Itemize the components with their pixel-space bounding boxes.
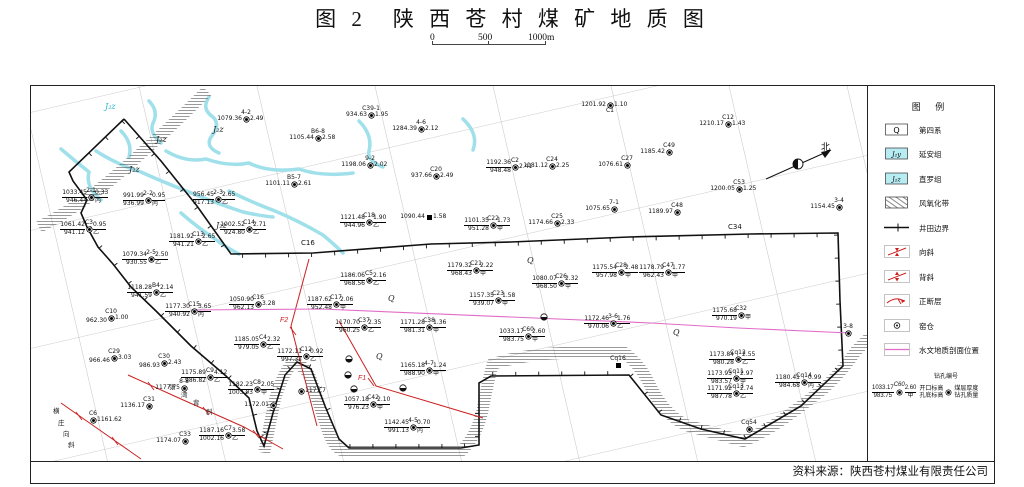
legend-item-3: J₂z直罗组 [884,172,994,187]
fold-name-char: 张 [169,382,176,391]
legend-symbol-syncline [884,245,910,260]
fault-label: F1 [358,375,366,382]
kiln-symbol [351,386,357,392]
legend-symbol-anticline [884,270,910,285]
fold-name-char: 向 [63,429,70,438]
point-label: C16 [301,239,315,247]
legend-label: 井田边界 [919,223,949,234]
legend-symbol-section [884,343,910,358]
legend-symbol-fault [884,294,910,309]
legend-item-2: J₂y延安组 [884,147,994,162]
stratum-label: J₂z [211,125,224,134]
svg-text:Q: Q [893,126,899,135]
legend-label: 背斜 [919,272,934,283]
legend-symbol-qbox: Q [884,123,910,138]
geological-map-figure: { "title": "图 2 陕 西 苍 村 煤 矿 地 质 图", "sca… [0,0,1024,487]
legend-label: 风氧化带 [919,198,949,209]
north-label: 北 [821,142,830,153]
map-canvas: 北J₂zJ₂zJ₂zJ₂zJ₂zQQQQC16C34F2F1张湾背斜横庄向斜 [31,86,994,483]
map-frame: 北J₂zJ₂zJ₂zJ₂zJ₂zQQQQC16C34F2F1张湾背斜横庄向斜 4… [30,85,995,484]
legend-item-9: 窑仓 [884,319,994,334]
kiln-symbol [345,372,351,378]
stratum-label: J₂z [154,135,167,144]
legend-item-7: 背斜 [884,270,994,285]
fold-name-char: 庄 [58,418,65,427]
legend-label: 第四系 [919,125,942,136]
scale-bar-rule [432,44,546,50]
stratum-label: Q [527,256,534,265]
stratum-label: J₂z [127,165,140,174]
legend-item-1: Q第四系 [884,123,994,138]
stratum-label: Q [376,352,383,361]
fold-name-char: 斜 [68,440,75,449]
figure-title: 图 2 陕 西 苍 村 煤 矿 地 质 图 [0,3,1024,33]
fold-name-char: 横 [53,406,60,415]
scale-label-1000: 1000m [528,33,554,43]
kiln-symbol [346,356,352,362]
legend-panel: 图 例 Q第四系J₂y延安组J₂z直罗组风氧化带井田边界向斜背斜正断层窑仓水文地… [867,86,994,461]
legend-label: 窑仓 [919,321,934,332]
kiln-symbol [400,385,406,391]
fold-name-char: 斜 [206,407,213,416]
stratum-label: J₂z [214,221,227,230]
fold-name-char: 湾 [181,390,188,399]
fault-label: F2 [280,317,288,324]
legend-item-6: 向斜 [884,245,994,260]
stratum-label: J₂z [103,102,116,111]
svg-text:J₂y: J₂y [890,151,901,159]
drill-example-id-label: 钻孔编号 [934,374,958,381]
point-label: C34 [728,223,742,231]
legend-symbol-cyanbox: J₂y [884,147,910,162]
legend-item-5: 井田边界 [884,221,994,236]
legend-item-8: 正断层 [884,294,994,309]
fold-name-char: 背 [193,398,200,407]
legend-item-4: 风氧化带 [884,196,994,211]
legend-label: 延安组 [919,149,942,160]
source-attribution: 资料来源：陕西苍村煤业有限责任公司 [31,461,994,483]
source-text: 资料来源：陕西苍村煤业有限责任公司 [793,466,989,478]
legend-symbol-boundary [884,221,910,236]
legend-symbol-hatch [884,196,910,211]
scale-bar: 0 500 1000m [428,33,558,50]
legend-symbol-cyanbox: J₂z [884,172,910,187]
legend-item-10: 水文地质剖面位置 [884,343,994,358]
legend-label: 水文地质剖面位置 [919,345,979,356]
stratum-label: Q [388,294,395,303]
legend-label: 直罗组 [919,174,942,185]
kiln-symbol [541,314,547,320]
legend-label: 正断层 [919,296,942,307]
svg-text:J₂z: J₂z [890,175,901,183]
legend-title: 图 例 [868,100,994,113]
legend-label: 向斜 [919,247,934,258]
legend-symbol-kiln [884,319,910,334]
stratum-label: Q [673,328,680,337]
legend-drill-example: 钻孔编号1033.17983.75C602.60甲开口标高孔底标高煤层厚度钻孔质… [872,374,992,414]
scale-label-500: 500 [478,33,492,43]
